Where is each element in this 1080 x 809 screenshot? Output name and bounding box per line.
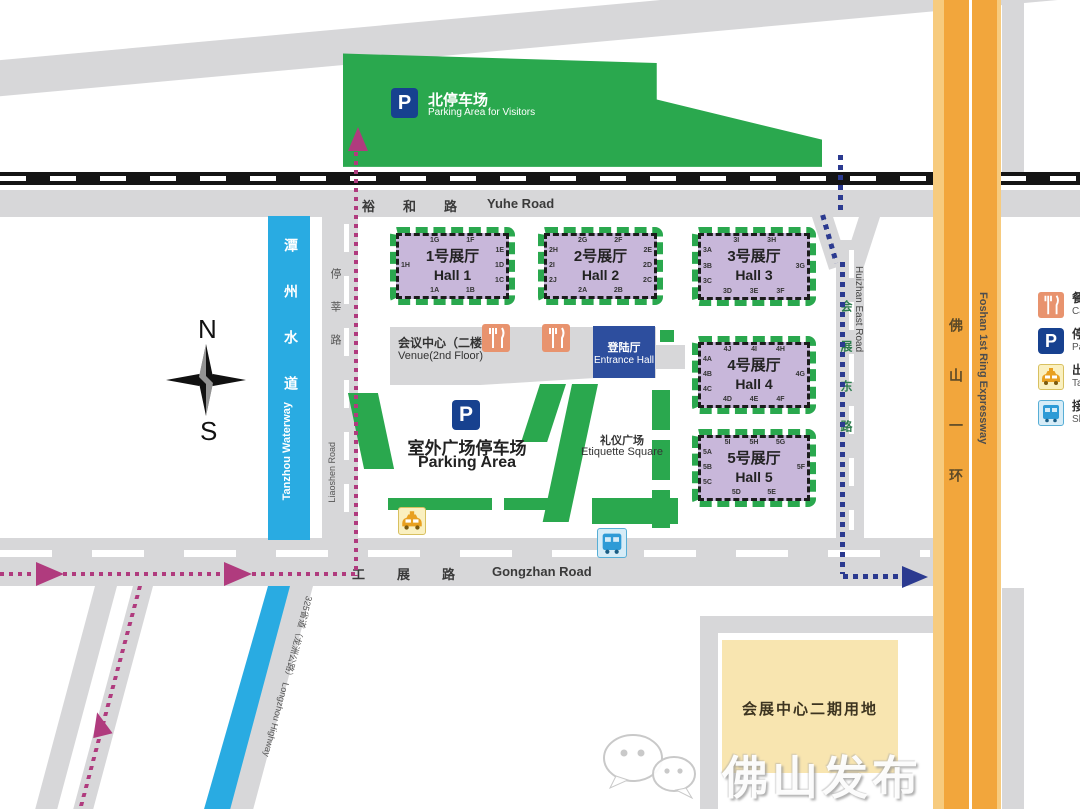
entrance-hall: 登陆厅 Entrance Hall [593, 326, 655, 378]
hall-2-label: 2号展厅 Hall 2 [547, 236, 654, 296]
hall-5-building: 5号展厅 Hall 5 5I5H5G5F5D5E5A5B5C [698, 435, 810, 501]
entrance-hall-label-en: Entrance Hall [594, 355, 654, 366]
gate-label-1a: 1A [430, 287, 439, 295]
watermark-text: 佛山发布 [722, 742, 922, 808]
gongzhan-road-lane-dashes [0, 550, 930, 557]
pink-route-arrow-west-1 [36, 562, 64, 586]
legend-item-catering: 餐饮 Catering [1038, 292, 1080, 318]
yuhe-road-label-zh: 裕和路 [362, 196, 485, 215]
hall-3: 3号展厅 Hall 3 3I3H3G3D3E3F3A3B3C [692, 227, 816, 306]
venue-label-en: Venue(2nd Floor) [398, 350, 483, 362]
catering-icon [542, 324, 570, 352]
east-gray-strip-bottom [1002, 588, 1024, 809]
gate-label-2i: 2I [549, 262, 555, 270]
blue-route-arrow-east [902, 566, 928, 588]
green-area [592, 498, 678, 524]
gate-label-1h: 1H [401, 262, 410, 270]
hall-5-label-zh: 5号展厅 [727, 450, 780, 469]
gate-label-4b: 4B [703, 371, 712, 379]
gate-label-4g: 4G [796, 371, 805, 379]
north-parking-p-icon: P [391, 88, 418, 118]
gate-label-1f: 1F [466, 237, 474, 245]
hall-4: 4号展厅 Hall 4 4J4I4H4G4D4E4F4A4B4C [692, 336, 816, 414]
hall-1-label-en: Hall 1 [434, 267, 471, 285]
shuttle-bus-icon [1038, 400, 1064, 426]
legend-item-taxi: 出租车 Taxi [1038, 364, 1080, 390]
gate-label-5c: 5C [703, 479, 712, 487]
legend-item-parking: P 停车场 Parking [1038, 328, 1080, 354]
pink-route-arrow-west-2 [224, 562, 252, 586]
gate-label-2g: 2G [578, 237, 587, 245]
shuttle-bus-icon [597, 528, 627, 558]
gate-label-4d: 4D [723, 396, 732, 404]
legend-parking-en: Parking [1072, 342, 1080, 354]
gate-label-4a: 4A [703, 356, 712, 364]
taxi-icon [398, 507, 426, 535]
gate-label-5b: 5B [703, 464, 712, 472]
huizhan-east-road-label-en: Huizhan East Road [853, 266, 864, 352]
blue-route-huizhan [840, 262, 845, 574]
green-area [521, 384, 566, 442]
catering-icon [1038, 292, 1064, 318]
railway-line [0, 172, 1080, 185]
gate-label-5d: 5D [732, 489, 741, 497]
liaoshen-road-label-zh: 停莘路 [327, 268, 343, 367]
gongzhan-road-label-en: Gongzhan Road [492, 564, 592, 579]
wechat-bubbles-icon [588, 728, 708, 800]
legend-parking-zh: 停车场 [1072, 328, 1080, 342]
hall-3-label-en: Hall 3 [735, 267, 772, 285]
green-area [652, 390, 670, 430]
catering-icon [482, 324, 510, 352]
north-parking-label-en: Parking Area for Visitors [428, 107, 535, 118]
hall-3-building: 3号展厅 Hall 3 3I3H3G3D3E3F3A3B3C [698, 233, 810, 300]
gate-label-3a: 3A [703, 247, 712, 255]
gate-label-1e: 1E [495, 247, 504, 255]
gate-label-4c: 4C [703, 386, 712, 394]
gate-label-1d: 1D [495, 262, 504, 270]
gate-label-3b: 3B [703, 263, 712, 271]
hall-1-building: 1号展厅 Hall 1 1G1F1E1D1C1A1B1H [396, 233, 509, 299]
gate-label-4j: 4J [724, 346, 732, 354]
gate-label-3f: 3F [776, 288, 784, 296]
gate-label-1b: 1B [466, 287, 475, 295]
hall-4-label-zh: 4号展厅 [727, 357, 780, 376]
taxi-icon [1038, 364, 1064, 390]
tanzhou-waterway-label-zh: 潭州水道 [281, 238, 301, 422]
gate-label-4h: 4H [776, 346, 785, 354]
foshan-ring-expressway-centerline [969, 0, 972, 809]
entrance-east-walkway [655, 345, 685, 369]
hall-2: 2号展厅 Hall 2 2G2F2E2D2C2A2B2H2I2J [538, 227, 663, 305]
gate-label-2e: 2E [643, 247, 652, 255]
hall-4-label-en: Hall 4 [735, 376, 772, 394]
foshan-ring-label-en: Foshan 1st Ring Expressway [977, 292, 989, 444]
gate-label-3c: 3C [703, 278, 712, 286]
blue-route-gongzhan [843, 574, 903, 579]
gate-label-2j: 2J [549, 277, 557, 285]
compass-south-label: S [200, 416, 217, 447]
legend-shuttle-en: Shuttle Bus [1072, 414, 1080, 426]
liaoshen-road-label-en: Liaoshen Road [327, 442, 337, 503]
east-gray-strip-top [1002, 0, 1024, 172]
entrance-hall-label-zh: 登陆厅 [608, 339, 641, 355]
legend-shuttle-zh: 接驳巴士 [1072, 400, 1080, 414]
gate-label-5f: 5F [797, 464, 805, 472]
gate-label-5e: 5E [767, 489, 776, 497]
gate-label-2d: 2D [643, 262, 652, 270]
phase2-road-horizontal [700, 616, 937, 633]
tanzhou-waterway-label-en: Tanzhou Waterway [281, 402, 293, 500]
gate-label-4i: 4I [751, 346, 757, 354]
blue-route-vertical [838, 155, 843, 215]
outdoor-parking-p-icon: P [452, 400, 480, 430]
venue-label-zh: 会议中心（二楼） [398, 334, 494, 351]
gate-label-3g: 3G [796, 263, 805, 271]
pink-route-arrow-north [348, 127, 368, 151]
hall-1-label-zh: 1号展厅 [426, 248, 479, 267]
gate-label-3h: 3H [767, 237, 776, 245]
parking-icon: P [1038, 328, 1064, 354]
outdoor-parking-label-en: Parking Area [418, 454, 516, 472]
compass-rose-icon [166, 344, 246, 416]
hall-3-label-zh: 3号展厅 [727, 248, 780, 267]
hall-4-building: 4号展厅 Hall 4 4J4I4H4G4D4E4F4A4B4C [698, 342, 810, 408]
gongzhan-road-label-zh: 工展路 [352, 564, 487, 583]
hall-2-building: 2号展厅 Hall 2 2G2F2E2D2C2A2B2H2I2J [544, 233, 657, 299]
phase2-land-label: 会展中心二期用地 [742, 698, 878, 719]
hall-2-label-en: Hall 2 [582, 267, 619, 285]
gate-label-2f: 2F [614, 237, 622, 245]
gate-label-3e: 3E [750, 288, 759, 296]
legend-catering-zh: 餐饮 [1072, 292, 1080, 306]
legend-taxi-zh: 出租车 [1072, 364, 1080, 378]
compass-north-label: N [198, 314, 217, 345]
hall-1: 1号展厅 Hall 1 1G1F1E1D1C1A1B1H [390, 227, 515, 305]
green-area [660, 330, 674, 342]
gate-label-2c: 2C [643, 277, 652, 285]
gate-label-1g: 1G [430, 237, 439, 245]
gate-label-2b: 2B [614, 287, 623, 295]
gate-label-2a: 2A [578, 287, 587, 295]
etiquette-square-label-en: Etiquette Square [581, 446, 663, 458]
hall-5-label: 5号展厅 Hall 5 [701, 438, 807, 498]
legend-item-shuttle-bus: 接驳巴士 Shuttle Bus [1038, 400, 1080, 426]
legend-taxi-en: Taxi [1072, 378, 1080, 390]
exhibition-center-map: 裕和路 Yuhe Road 工展路 Gongzhan Road 停莘路 Liao… [0, 0, 1080, 809]
liaoshen-road-lane-dashes [344, 224, 349, 534]
hall-5-label-en: Hall 5 [735, 469, 772, 487]
hall-5: 5号展厅 Hall 5 5I5H5G5F5D5E5A5B5C [692, 429, 816, 507]
gate-label-3d: 3D [723, 288, 732, 296]
gate-label-2h: 2H [549, 247, 558, 255]
foshan-ring-label-zh: 佛山一环 [946, 318, 966, 518]
gate-label-4f: 4F [776, 396, 784, 404]
legend-catering-en: Catering [1072, 306, 1080, 318]
gate-label-5h: 5H [750, 439, 759, 447]
railway-ties [0, 176, 1080, 181]
gate-label-5g: 5G [776, 439, 785, 447]
green-area [504, 498, 566, 510]
gate-label-1c: 1C [495, 277, 504, 285]
pink-route-vertical [354, 152, 358, 576]
gate-label-5a: 5A [703, 449, 712, 457]
hall-2-label-zh: 2号展厅 [574, 248, 627, 267]
gate-label-5i: 5I [725, 439, 731, 447]
hall-1-label: 1号展厅 Hall 1 [399, 236, 506, 296]
gate-label-3i: 3I [733, 237, 739, 245]
gate-label-4e: 4E [750, 396, 759, 404]
yuhe-road-label-en: Yuhe Road [487, 196, 554, 211]
